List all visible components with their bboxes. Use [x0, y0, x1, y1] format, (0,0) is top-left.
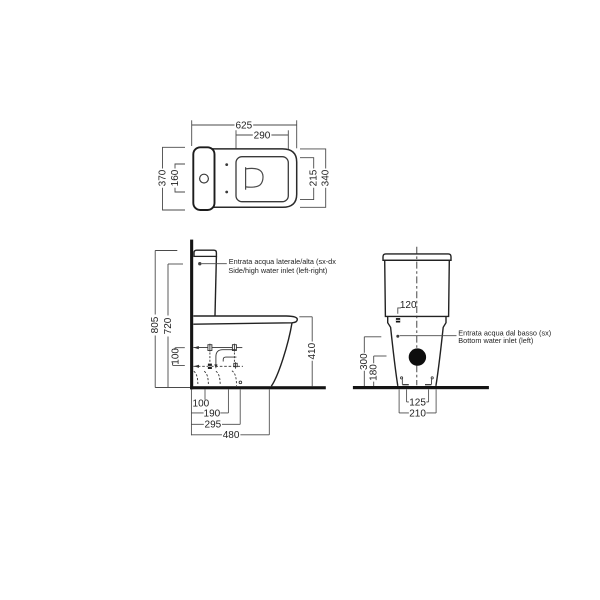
svg-text:Side/high water inlet (left-ri: Side/high water inlet (left-right): [228, 266, 327, 275]
svg-text:160: 160: [170, 169, 181, 186]
svg-text:805: 805: [150, 316, 161, 333]
svg-text:370: 370: [157, 169, 168, 186]
svg-text:410: 410: [307, 342, 318, 359]
svg-text:340: 340: [321, 169, 332, 186]
svg-text:190: 190: [204, 408, 221, 419]
svg-text:215: 215: [309, 169, 320, 186]
svg-text:125: 125: [409, 397, 426, 408]
svg-text:180: 180: [369, 364, 380, 381]
svg-text:100: 100: [170, 348, 181, 365]
svg-text:295: 295: [205, 420, 222, 431]
svg-text:Bottom water inlet (left): Bottom water inlet (left): [458, 336, 533, 345]
svg-text:625: 625: [235, 120, 252, 131]
svg-text:480: 480: [223, 430, 240, 441]
svg-text:720: 720: [163, 317, 174, 334]
svg-text:210: 210: [409, 408, 426, 419]
svg-text:Entrata acqua laterale/alta (s: Entrata acqua laterale/alta (sx-dx: [229, 257, 336, 266]
svg-text:290: 290: [254, 130, 271, 141]
svg-text:120: 120: [400, 300, 417, 311]
